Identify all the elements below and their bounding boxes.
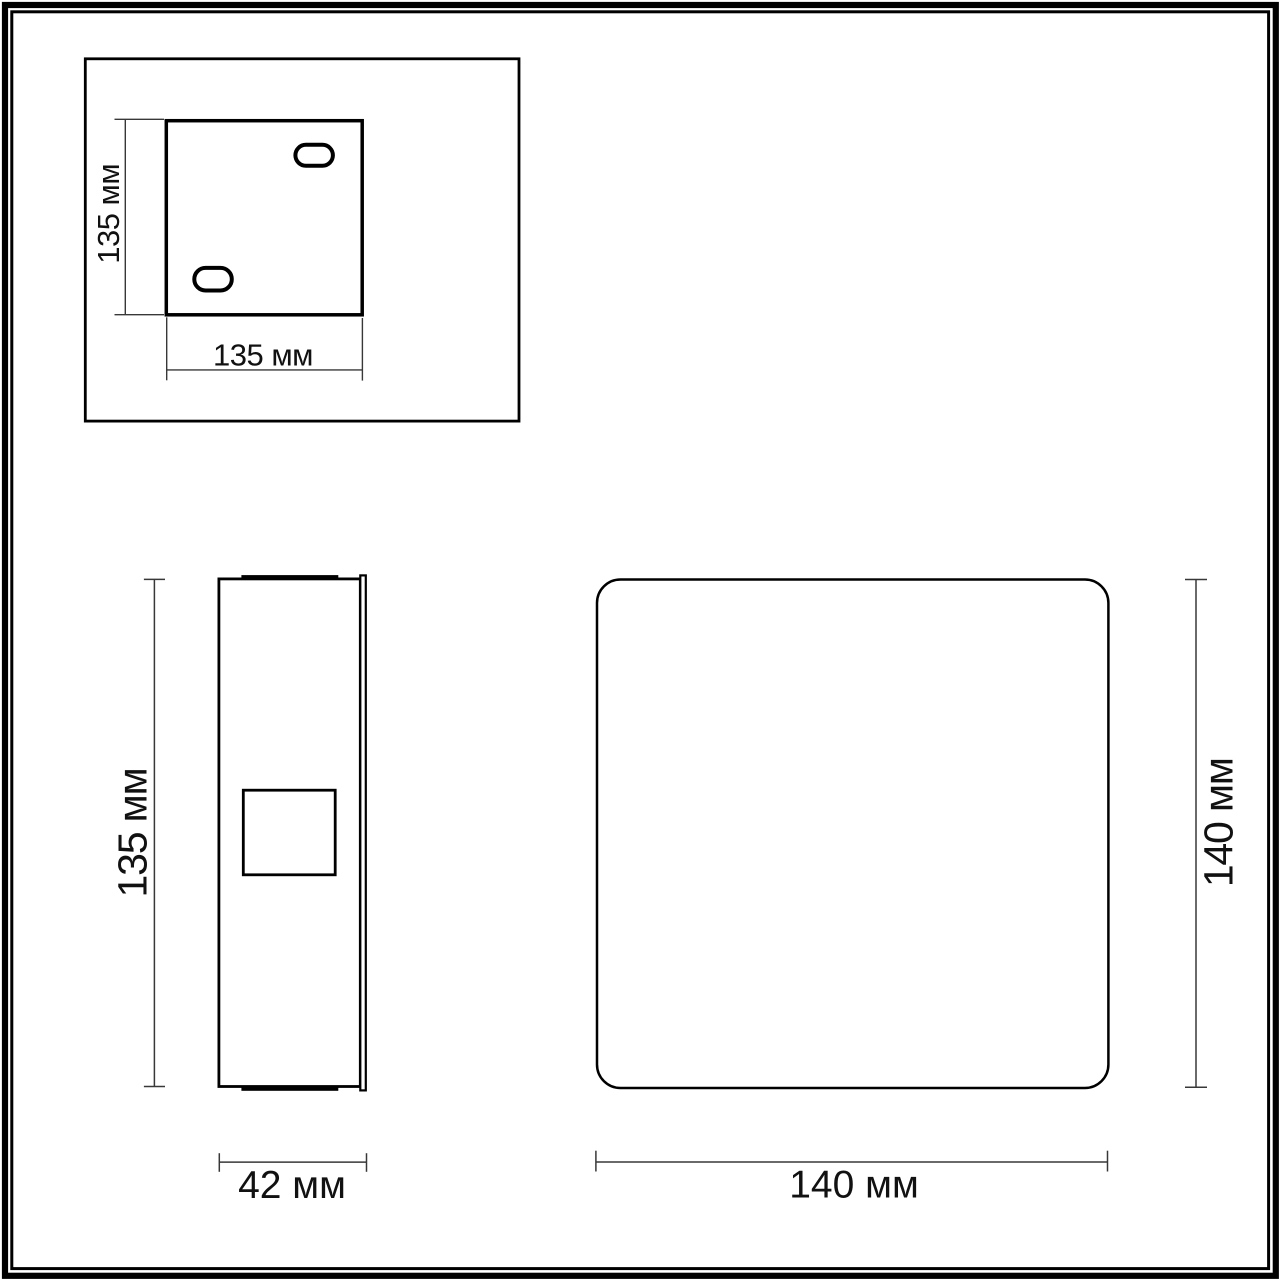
svg-text:135 мм: 135 мм xyxy=(91,164,126,264)
svg-text:140 мм: 140 мм xyxy=(1196,758,1242,887)
svg-text:140 мм: 140 мм xyxy=(789,1164,919,1207)
svg-text:42 мм: 42 мм xyxy=(238,1164,346,1207)
svg-text:135 мм: 135 мм xyxy=(109,769,155,898)
svg-text:135 мм: 135 мм xyxy=(213,338,313,373)
